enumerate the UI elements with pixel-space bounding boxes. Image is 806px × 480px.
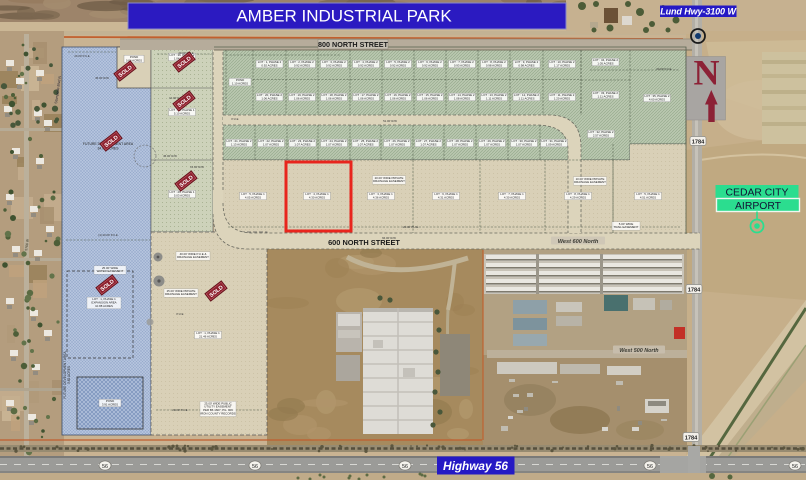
svg-text:1.17 ACRES: 1.17 ACRES: [554, 64, 570, 68]
svg-text:1.08 ACRES: 1.08 ACRES: [454, 97, 470, 101]
svg-text:5.10 ACRES: 5.10 ACRES: [174, 112, 190, 116]
svg-text:56: 56: [792, 464, 798, 470]
svg-text:1.20 ACRES: 1.20 ACRES: [554, 97, 570, 101]
svg-text:AIRPORT: AIRPORT: [735, 201, 782, 212]
svg-text:1.06 ACRES: 1.06 ACRES: [358, 97, 374, 101]
svg-text:4.30 ACRES: 4.30 ACRES: [309, 196, 325, 200]
svg-text:1784: 1784: [688, 287, 701, 293]
svg-text:0.92 ACRES: 0.92 ACRES: [294, 64, 310, 68]
svg-text:0.98 ACRES: 0.98 ACRES: [518, 64, 534, 68]
svg-text:1.06 ACRES: 1.06 ACRES: [422, 97, 438, 101]
svg-text:21.46 ACRES: 21.46 ACRES: [199, 335, 217, 339]
svg-text:30.00’ P.U.E. ......: 30.00’ P.U.E. ......: [656, 67, 678, 71]
svg-text:1784: 1784: [685, 435, 698, 441]
svg-text:West 600 North: West 600 North: [558, 239, 599, 245]
svg-text:DRAINAGE EASEMENT: DRAINAGE EASEMENT: [177, 255, 209, 259]
svg-text:1.11 ACRES: 1.11 ACRES: [597, 95, 613, 99]
svg-text:45.00’ R/W: 45.00’ R/W: [95, 76, 109, 80]
svg-text:0.92 ACRES: 0.92 ACRES: [390, 64, 406, 68]
svg-text:4.31 ACRES: 4.31 ACRES: [438, 196, 454, 200]
svg-text:20.00’ P.U.E: 20.00’ P.U.E: [172, 408, 187, 412]
svg-text:0.98 ACRES: 0.98 ACRES: [486, 64, 502, 68]
svg-text:1.06 ACRES: 1.06 ACRES: [261, 97, 277, 101]
svg-text:WATER EASEMENT: WATER EASEMENT: [97, 269, 124, 273]
svg-text:0.92 ACRES: 0.92 ACRES: [358, 64, 374, 68]
svg-text:0.93 ACRES: 0.93 ACRES: [454, 64, 470, 68]
svg-text:4.60 ACRES: 4.60 ACRES: [649, 98, 665, 102]
svg-text:1.07 ACRES: 1.07 ACRES: [357, 143, 373, 147]
svg-text:Lund Hwy-3100 W: Lund Hwy-3100 W: [660, 7, 737, 17]
svg-text:1.13 ACRES: 1.13 ACRES: [231, 143, 247, 147]
svg-text:IRON COUNTY RECORDS: IRON COUNTY RECORDS: [200, 412, 236, 416]
svg-text:0.92 ACRES: 0.92 ACRES: [326, 64, 342, 68]
svg-text:TRAIL EASEMENT: TRAIL EASEMENT: [614, 225, 639, 229]
svg-text:1.06 ACRES: 1.06 ACRES: [326, 97, 342, 101]
svg-text:3.91 ACRES: 3.91 ACRES: [102, 403, 118, 407]
svg-text:20.00’ P.U.E.: 20.00’ P.U.E.: [403, 225, 419, 229]
svg-text:56: 56: [647, 464, 653, 470]
svg-text:2.57 ACRES: 2.57 ACRES: [593, 134, 609, 138]
svg-text:N: N: [694, 53, 720, 93]
svg-text:51.00’ R/W: 51.00’ R/W: [383, 119, 397, 123]
svg-text:(4) 20.00’ P.U.E: (4) 20.00’ P.U.E: [98, 233, 118, 237]
svg-text:1.10 ACRES: 1.10 ACRES: [232, 82, 248, 86]
svg-text:600 NORTH STREET: 600 NORTH STREET: [328, 238, 400, 247]
svg-text:1.06 ACRES: 1.06 ACRES: [390, 97, 406, 101]
svg-text:AMBER INDUSTRIAL PARK: AMBER INDUSTRIAL PARK: [236, 7, 452, 26]
svg-text:1.06 ACRES: 1.06 ACRES: [294, 97, 310, 101]
svg-text:56: 56: [252, 464, 258, 470]
svg-text:800 NORTH STREET: 800 NORTH STREET: [318, 40, 389, 49]
svg-text:P.U.E: P.U.E: [177, 312, 184, 316]
svg-text:56: 56: [402, 464, 408, 470]
svg-text:CEDAR CITY: CEDAR CITY: [726, 187, 789, 198]
svg-text:1.07 ACRES: 1.07 ACRES: [516, 143, 532, 147]
svg-text:4.05 ACRES: 4.05 ACRES: [245, 196, 261, 200]
svg-text:Highway 56: Highway 56: [443, 459, 508, 473]
svg-text:1.07 ACRES: 1.07 ACRES: [389, 143, 405, 147]
svg-text:1.07 ACRES: 1.07 ACRES: [420, 143, 436, 147]
svg-text:45.00’ R/W: 45.00’ R/W: [163, 154, 177, 158]
svg-text:DRAINAGE EASEMENT: DRAINAGE EASEMENT: [574, 180, 606, 184]
svg-text:1.07 ACRES: 1.07 ACRES: [326, 143, 342, 147]
svg-text:4.36 ACRES: 4.36 ACRES: [373, 196, 389, 200]
svg-text:4.51 ACRES: 4.51 ACRES: [640, 196, 656, 200]
svg-text:4.29 ACRES: 4.29 ACRES: [570, 196, 586, 200]
svg-text:3.82 ACRES: 3.82 ACRES: [67, 366, 71, 384]
svg-text:1.07 ACRES: 1.07 ACRES: [263, 143, 279, 147]
svg-text:1.05 ACRES: 1.05 ACRES: [597, 62, 613, 66]
svg-text:20.00’ P.U.E: 20.00’ P.U.E: [74, 54, 89, 58]
svg-text:1.11 ACRES: 1.11 ACRES: [518, 97, 534, 101]
svg-text:5.03 ACRES: 5.03 ACRES: [174, 194, 190, 198]
svg-text:1784: 1784: [692, 139, 705, 145]
svg-text:0.92 ACRES: 0.92 ACRES: [422, 64, 438, 68]
svg-text:1.11 ACRES: 1.11 ACRES: [486, 97, 502, 101]
svg-text:15.00’ R/W: 15.00’ R/W: [190, 165, 204, 169]
svg-text:4.30 ACRES: 4.30 ACRES: [504, 196, 520, 200]
svg-text:10.88 ACRES: 10.88 ACRES: [95, 304, 113, 308]
svg-text:1.09 ACRES: 1.09 ACRES: [546, 143, 562, 147]
svg-text:P.U.E: P.U.E: [232, 117, 239, 121]
svg-text:1.07 ACRES: 1.07 ACRES: [294, 143, 310, 147]
svg-text:56: 56: [102, 464, 108, 470]
svg-text:1.07 ACRES: 1.07 ACRES: [484, 143, 500, 147]
svg-text:1.07 ACRES: 1.07 ACRES: [452, 143, 468, 147]
svg-text:DRAINAGE EASEMENT: DRAINAGE EASEMENT: [165, 292, 197, 296]
svg-text:West 500 North: West 500 North: [619, 348, 659, 354]
svg-text:DRAINAGE EASEMENT: DRAINAGE EASEMENT: [373, 179, 405, 183]
svg-text:0.92 ACRES: 0.92 ACRES: [261, 64, 277, 68]
